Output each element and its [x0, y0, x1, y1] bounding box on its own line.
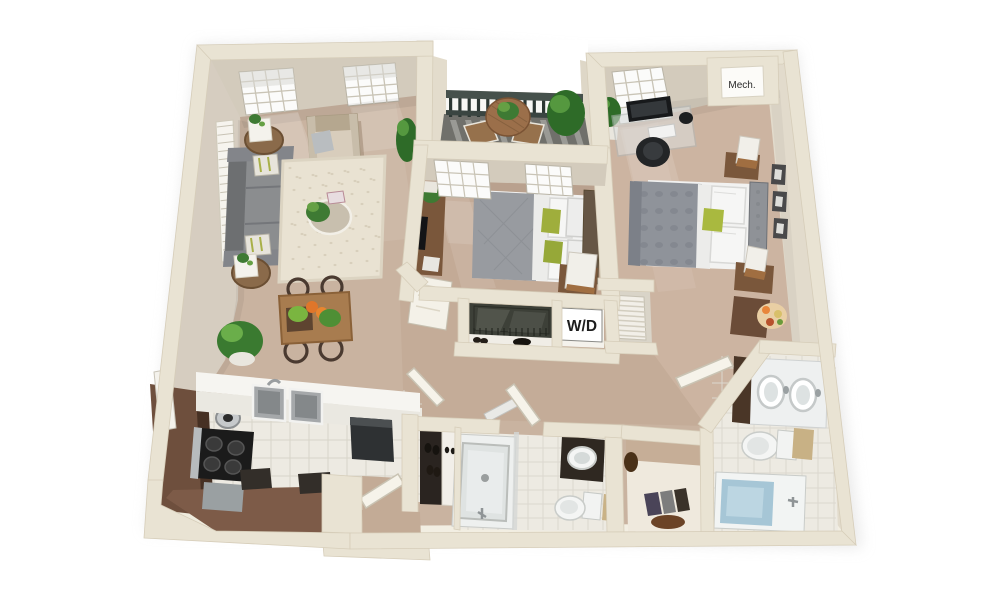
svg-text:W/D: W/D — [567, 318, 597, 335]
svg-text:Mech.: Mech. — [728, 80, 755, 91]
